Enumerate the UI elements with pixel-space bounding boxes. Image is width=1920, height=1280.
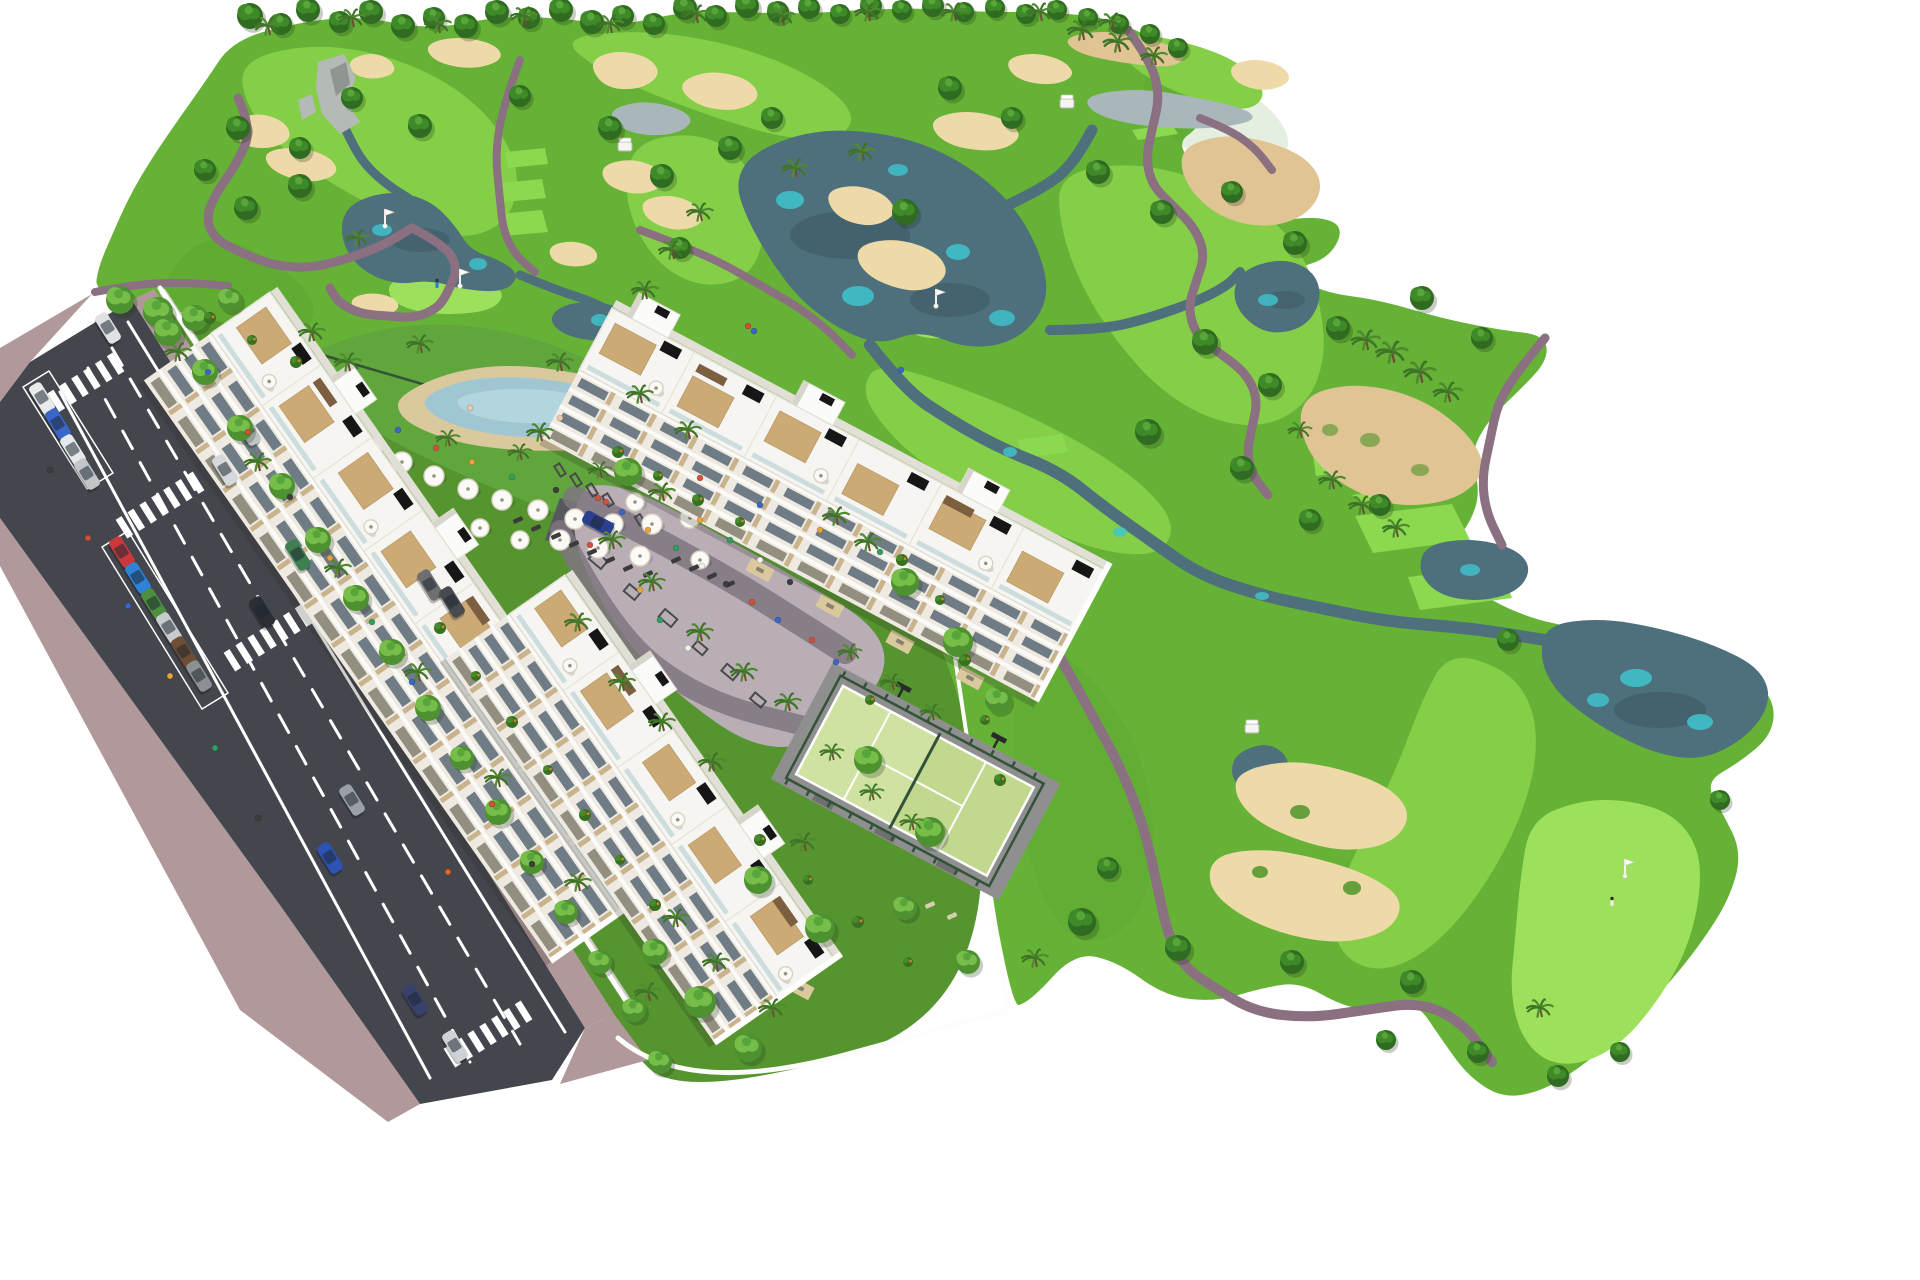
person (212, 745, 218, 751)
flower (587, 812, 590, 815)
tree-highlight (152, 300, 162, 310)
bush (247, 336, 253, 342)
bush (653, 472, 659, 478)
flower (657, 902, 660, 905)
tree-highlight (650, 942, 658, 950)
teal (989, 310, 1015, 326)
flower (549, 768, 552, 771)
person (587, 542, 593, 548)
person (395, 427, 401, 433)
tree-highlight (457, 749, 465, 757)
golfer (1610, 900, 1613, 906)
person (445, 869, 451, 875)
tree-highlight (862, 749, 871, 758)
teal (1460, 564, 1480, 576)
person (727, 537, 733, 543)
tree-highlight (649, 16, 656, 23)
tree-highlight (492, 3, 500, 11)
bush (852, 917, 859, 924)
flower (659, 474, 662, 477)
umbrella-pole (633, 500, 637, 504)
teal (372, 224, 392, 236)
tree-highlight (561, 903, 569, 911)
person (245, 429, 251, 435)
tree-highlight (1227, 184, 1234, 191)
tree-highlight (303, 1, 311, 9)
tree-highlight (898, 2, 904, 8)
tree-highlight (587, 13, 595, 21)
umbrella-pole (558, 538, 562, 542)
teal (1255, 592, 1269, 600)
cart-canopy (1061, 95, 1073, 99)
bush (896, 555, 903, 562)
person (47, 467, 53, 473)
tree-highlight (693, 990, 703, 1000)
tree-highlight (1553, 1068, 1560, 1075)
tree-highlight (556, 1, 564, 9)
tee (500, 179, 546, 202)
flower (986, 718, 989, 721)
bush (994, 775, 1001, 782)
person (697, 517, 703, 523)
bush (754, 835, 761, 842)
tree-highlight (190, 308, 198, 316)
tree-highlight (233, 119, 241, 127)
person (745, 323, 751, 329)
tree-highlight (1287, 953, 1295, 961)
golfer (435, 282, 438, 288)
tree-highlight (114, 289, 123, 298)
person (673, 545, 679, 551)
tree-highlight (1375, 497, 1382, 504)
bush (980, 716, 986, 722)
tree-highlight (993, 690, 1001, 698)
golfer-head (435, 279, 438, 282)
tuft (1322, 424, 1338, 436)
tree-highlight (963, 953, 971, 961)
teal (776, 191, 804, 209)
flower (762, 837, 765, 840)
tree-highlight (952, 630, 962, 640)
flower (909, 960, 912, 963)
flower (700, 497, 703, 500)
tree-highlight (387, 642, 395, 650)
cart-canopy (1246, 720, 1258, 724)
tree-highlight (1503, 632, 1510, 639)
umbrella-pole (432, 474, 436, 478)
tree-highlight (1333, 319, 1341, 327)
putting-green-right (1512, 800, 1700, 1064)
person (619, 509, 625, 515)
tuft (1343, 881, 1361, 895)
person (85, 535, 91, 541)
person (327, 555, 333, 561)
person (205, 369, 211, 375)
person (557, 415, 563, 421)
person (898, 367, 904, 373)
tree-highlight (1143, 422, 1151, 430)
person (749, 599, 755, 605)
bush (204, 313, 211, 320)
person (757, 502, 763, 508)
umbrella-pole (698, 558, 702, 562)
person (467, 405, 473, 411)
umbrella-pole (518, 538, 522, 542)
umbrella-pole (573, 517, 577, 521)
person (723, 581, 729, 587)
golfer-head (1610, 897, 1613, 900)
tree-highlight (1265, 376, 1273, 384)
person (489, 801, 495, 807)
person (125, 603, 131, 609)
tuft (1290, 805, 1310, 819)
bush (543, 766, 549, 772)
bush (649, 900, 656, 907)
umbrella-pole (536, 508, 540, 512)
flower (212, 315, 215, 318)
person (409, 679, 415, 685)
person (595, 495, 601, 501)
tree-highlight (900, 202, 908, 210)
tree-highlight (1477, 330, 1484, 337)
tree-highlight (366, 3, 374, 11)
bush (865, 696, 871, 702)
tree-highlight (836, 6, 842, 12)
person (603, 499, 609, 505)
golf-cart (1245, 720, 1259, 733)
tree-highlight (313, 530, 321, 538)
person (287, 494, 293, 500)
person (433, 445, 439, 451)
person (751, 328, 757, 334)
person (757, 557, 763, 563)
person (697, 475, 703, 481)
tree-highlight (924, 820, 934, 830)
person (553, 487, 559, 493)
person (469, 459, 475, 465)
bush (612, 447, 619, 454)
tree-highlight (351, 588, 359, 596)
tree-highlight (725, 139, 733, 147)
person (817, 527, 823, 533)
person (809, 637, 815, 643)
person (775, 617, 781, 623)
tree-highlight (629, 1001, 637, 1009)
flower (621, 858, 624, 861)
person (509, 474, 515, 480)
tree-highlight (200, 162, 207, 169)
tree-highlight (742, 1037, 751, 1046)
tree-highlight (515, 88, 522, 95)
bush (506, 717, 513, 724)
tree-highlight (1382, 1032, 1388, 1038)
teal (1687, 714, 1713, 730)
bush (471, 672, 477, 678)
tree-highlight (461, 17, 469, 25)
tree-highlight (527, 853, 535, 861)
teal (1258, 294, 1278, 306)
flower (967, 657, 970, 660)
umbrella-pole (478, 526, 482, 530)
flower (741, 520, 744, 523)
flower (477, 674, 480, 677)
tree-highlight (814, 916, 824, 926)
bush (935, 596, 941, 602)
tree-highlight (1173, 938, 1181, 946)
tree-highlight (1007, 110, 1014, 117)
teal (842, 286, 874, 306)
person (167, 673, 173, 679)
tree-highlight (277, 476, 285, 484)
tree-highlight (767, 110, 774, 117)
tree-highlight (1290, 234, 1298, 242)
flower (620, 449, 623, 452)
golf-cart (1060, 95, 1074, 108)
flower (442, 625, 445, 628)
person (255, 815, 261, 821)
tree-highlight (245, 6, 253, 14)
tree-highlight (1716, 792, 1722, 798)
person (833, 659, 839, 665)
bush (735, 518, 741, 524)
person (787, 579, 793, 585)
tree-highlight (415, 117, 423, 125)
teal (946, 244, 970, 260)
tree-highlight (276, 16, 283, 23)
person (637, 587, 643, 593)
masterplan-rendering (0, 0, 1920, 1280)
bush (615, 856, 621, 862)
person (645, 527, 651, 533)
tree-highlight (618, 8, 625, 15)
teal (1620, 669, 1652, 687)
bush (692, 495, 699, 502)
flower (871, 698, 874, 701)
tree-highlight (657, 167, 665, 175)
tree-highlight (423, 698, 431, 706)
umbrella-pole (638, 554, 642, 558)
bush (434, 623, 441, 630)
tree-highlight (225, 291, 233, 299)
flower (514, 719, 517, 722)
cart-body (1245, 724, 1259, 733)
tree-highlight (595, 953, 603, 961)
bush (803, 876, 809, 882)
tree-highlight (1157, 203, 1165, 211)
tree-highlight (900, 899, 908, 907)
person (657, 617, 663, 623)
flower (941, 598, 944, 601)
bush (959, 655, 966, 662)
bush (579, 810, 586, 817)
tree-highlight (711, 8, 718, 15)
tree-highlight (1407, 973, 1415, 981)
tree-highlight (295, 177, 303, 185)
teal (1587, 693, 1609, 707)
tree-highlight (1093, 163, 1101, 171)
teal (469, 258, 487, 270)
flower (860, 919, 863, 922)
tree-highlight (1053, 2, 1059, 8)
teal (1113, 527, 1127, 537)
tree-highlight (605, 119, 613, 127)
tree-highlight (1084, 10, 1090, 16)
tree-highlight (347, 90, 354, 97)
cart-body (1060, 99, 1074, 108)
tree-highlight (1237, 459, 1245, 467)
umbrella-pole (500, 498, 504, 502)
tree-highlight (241, 199, 249, 207)
bush (903, 958, 909, 964)
tree-highlight (235, 418, 243, 426)
bush (290, 357, 297, 364)
tree-highlight (1417, 289, 1425, 297)
tree-highlight (991, 0, 997, 6)
teal (888, 164, 908, 176)
flower (298, 359, 301, 362)
umbrella-pole (596, 546, 600, 550)
tree-highlight (1473, 1044, 1480, 1051)
flower (904, 557, 907, 560)
person (877, 549, 883, 555)
tuft (1360, 433, 1380, 447)
teal (1003, 447, 1017, 457)
tree-highlight (1146, 26, 1152, 32)
tree-highlight (752, 869, 761, 878)
tree-highlight (655, 1053, 663, 1061)
person (369, 619, 375, 625)
umbrella-pole (650, 522, 654, 526)
tree-highlight (1174, 40, 1180, 46)
tree-highlight (622, 461, 631, 470)
tuft (1411, 464, 1429, 476)
tree-highlight (295, 140, 302, 147)
flower (253, 338, 256, 341)
tree-highlight (1076, 911, 1085, 920)
flower (1002, 777, 1005, 780)
flower (809, 878, 812, 881)
tree-highlight (945, 79, 953, 87)
tree-highlight (162, 321, 171, 330)
tree-highlight (1103, 860, 1110, 867)
masterplan-svg (0, 0, 1920, 1280)
cart-body (618, 142, 632, 151)
person (699, 563, 705, 569)
tree-highlight (1200, 332, 1208, 340)
tuft (1252, 866, 1268, 878)
tree-highlight (1616, 1044, 1622, 1050)
umbrella-pole (466, 487, 470, 491)
person (529, 861, 535, 867)
tree-highlight (899, 571, 908, 580)
person (685, 645, 691, 651)
tree-highlight (1305, 512, 1312, 519)
tree-highlight (398, 17, 406, 25)
